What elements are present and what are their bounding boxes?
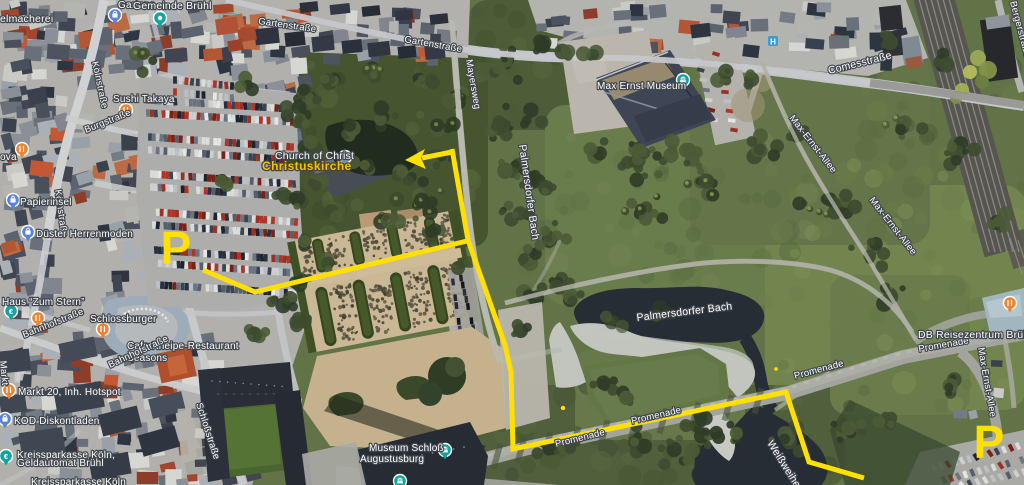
svg-text:Haus “Zum Stern”: Haus “Zum Stern” <box>2 297 85 308</box>
svg-text:Markt 20, Inh. Hotspot: Markt 20, Inh. Hotspot <box>18 387 121 398</box>
svg-text:DB Reisezentrum Brüh...: DB Reisezentrum Brüh... <box>918 329 1024 341</box>
svg-text:ova: ova <box>0 152 17 163</box>
svg-text:Schlossburger: Schlossburger <box>90 314 157 325</box>
svg-text:Markt: Markt <box>0 360 10 386</box>
svg-text:Christuskirche: Christuskirche <box>262 159 352 173</box>
svg-text:KOD Diskontladen: KOD Diskontladen <box>14 416 99 427</box>
svg-text:Kreissparkasse Köln: Kreissparkasse Köln <box>31 477 126 485</box>
svg-text:Papierinsel: Papierinsel <box>20 197 72 208</box>
svg-text:Sushi Takaya: Sushi Takaya <box>113 94 175 105</box>
svg-text:Museum Schloß: Museum Schloß <box>369 443 444 454</box>
svg-text:elmacherei: elmacherei <box>0 13 53 25</box>
svg-text:Augustusburg: Augustusburg <box>360 454 424 465</box>
svg-text:Max Ernst Museum: Max Ernst Museum <box>597 81 686 92</box>
svg-text:H: H <box>770 38 776 47</box>
svg-text:Geldautomat Brühl: Geldautomat Brühl <box>17 458 104 469</box>
svg-text:Gemeinde Brühl: Gemeinde Brühl <box>133 0 212 12</box>
svg-text:P: P <box>974 416 1005 468</box>
svg-text:Düster Herrenmoden: Düster Herrenmoden <box>36 229 133 240</box>
svg-text:P: P <box>161 222 192 274</box>
